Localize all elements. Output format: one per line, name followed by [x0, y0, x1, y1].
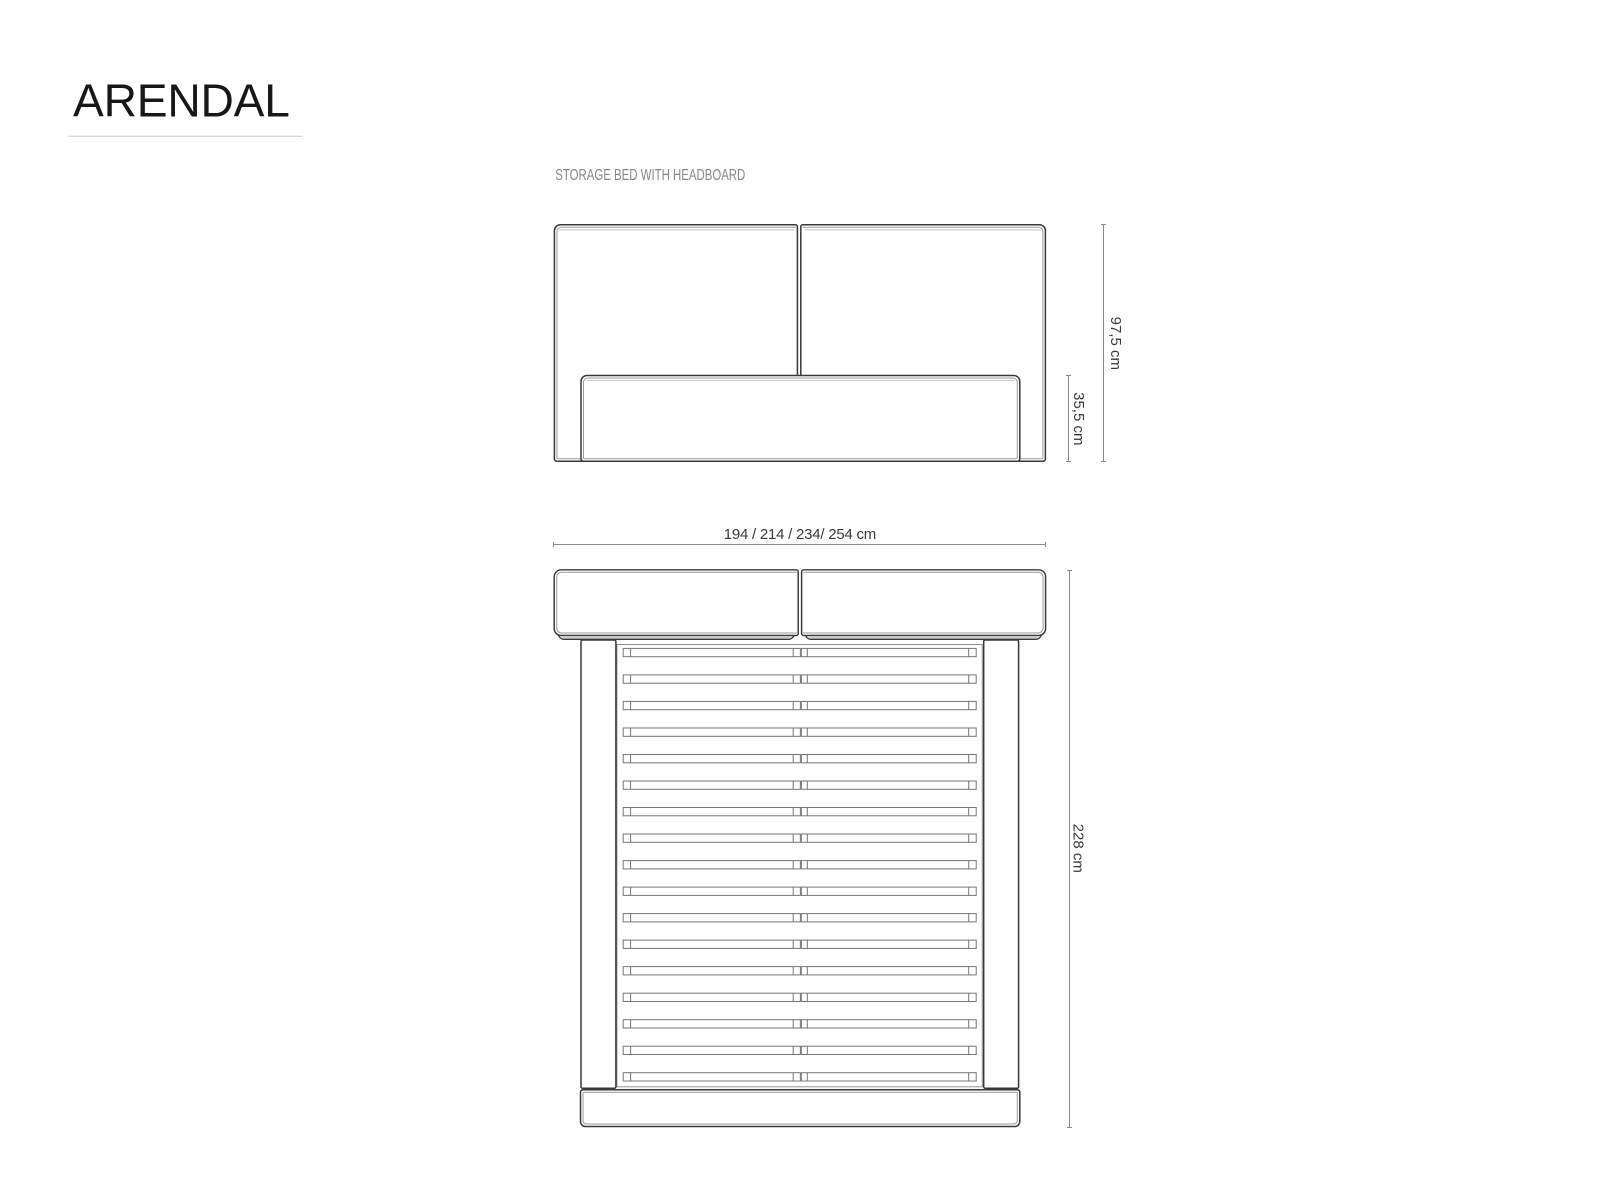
svg-text:194 / 214 / 234/ 254 cm: 194 / 214 / 234/ 254 cm: [724, 526, 877, 543]
svg-text:STORAGE BED WITH HEADBOARD: STORAGE BED WITH HEADBOARD: [555, 167, 745, 184]
svg-text:35,5 cm: 35,5 cm: [1070, 392, 1087, 445]
svg-text:97,5 cm: 97,5 cm: [1107, 317, 1124, 370]
svg-text:ARENDAL: ARENDAL: [73, 74, 290, 126]
svg-text:228 cm: 228 cm: [1069, 824, 1086, 873]
